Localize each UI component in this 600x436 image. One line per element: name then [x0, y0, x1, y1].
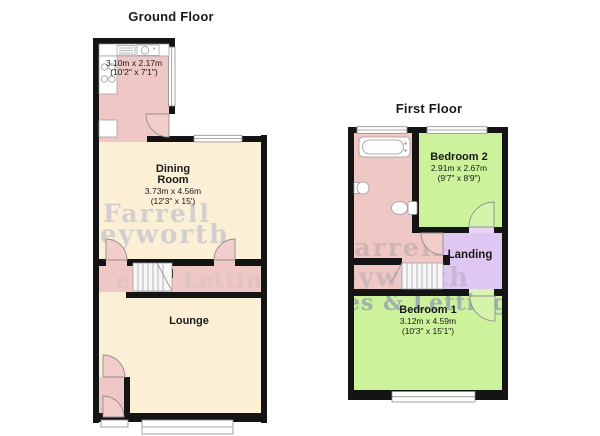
lounge-label: Lounge: [169, 316, 209, 327]
first-floor-title: First Floor: [396, 101, 462, 116]
gf-left-wall: [93, 38, 99, 423]
ff-right-wall: [502, 127, 508, 400]
gf-porch-wall: [124, 377, 130, 417]
bedroom1-label: Bedroom 1 3.12m x 4.59m (10'3" x 15'1"): [399, 305, 456, 336]
floorplan-drawing: Farrell eyworth es & Lettings Farrell ey…: [0, 0, 600, 436]
gf-stairs: [133, 263, 172, 291]
kitchen-dims: 3.10m x 2.17m (10'2" x 7'1"): [106, 59, 162, 77]
ff-bath-bed2-wall: [412, 133, 419, 233]
dining-room-label: Dining Room 3.73m x 4.56m (12'3" x 15'): [145, 164, 201, 206]
kitchen-worktop: [99, 120, 117, 137]
gf-kitchen-top-wall: [93, 38, 175, 44]
landing-label: Landing: [448, 250, 493, 261]
floorplan-canvas: Farrell eyworth es & Lettings Farrell ey…: [0, 0, 600, 436]
bedroom2-label: Bedroom 2 2.91m x 2.67m (9'7" x 8'9"): [430, 152, 487, 183]
gf-right-wall: [261, 135, 267, 423]
toilet-icon: [392, 202, 408, 215]
bathroom-sink-icon: [357, 182, 369, 194]
gf-lounge-wall: [126, 292, 267, 298]
toilet-cistern: [408, 202, 417, 215]
porch-step: [101, 420, 128, 427]
sink-icon: [137, 45, 159, 56]
ground-floor-title: Ground Floor: [128, 9, 213, 24]
